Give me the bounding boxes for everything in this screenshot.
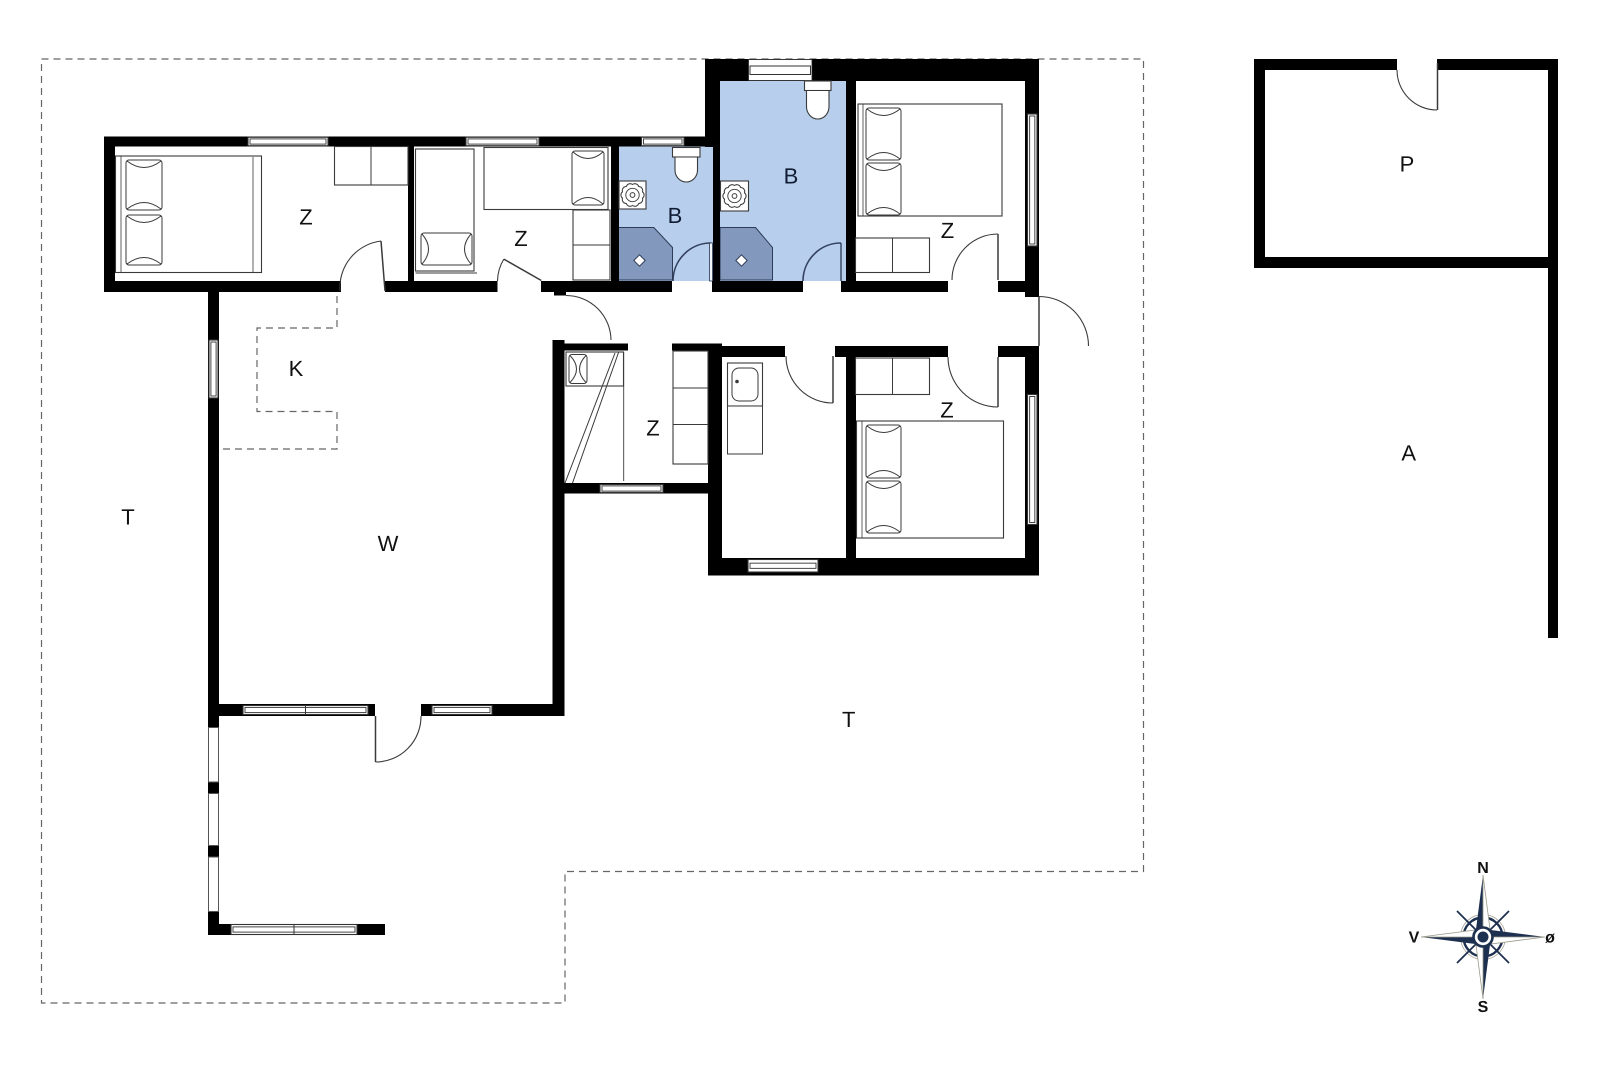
svg-text:Z: Z <box>514 226 527 251</box>
svg-text:B: B <box>668 203 683 228</box>
svg-text:T: T <box>842 707 855 732</box>
svg-text:Z: Z <box>940 398 953 423</box>
svg-text:K: K <box>289 356 304 381</box>
svg-text:T: T <box>121 505 134 530</box>
svg-text:B: B <box>784 164 799 189</box>
svg-text:P: P <box>1400 152 1415 177</box>
svg-text:S: S <box>1478 999 1489 1016</box>
svg-text:Z: Z <box>941 218 954 243</box>
svg-text:ø: ø <box>1545 930 1555 947</box>
svg-text:Z: Z <box>646 416 659 441</box>
svg-text:A: A <box>1401 441 1416 466</box>
svg-text:N: N <box>1477 860 1489 877</box>
svg-text:W: W <box>378 531 399 556</box>
svg-text:Z: Z <box>299 205 312 230</box>
svg-text:V: V <box>1409 930 1420 947</box>
